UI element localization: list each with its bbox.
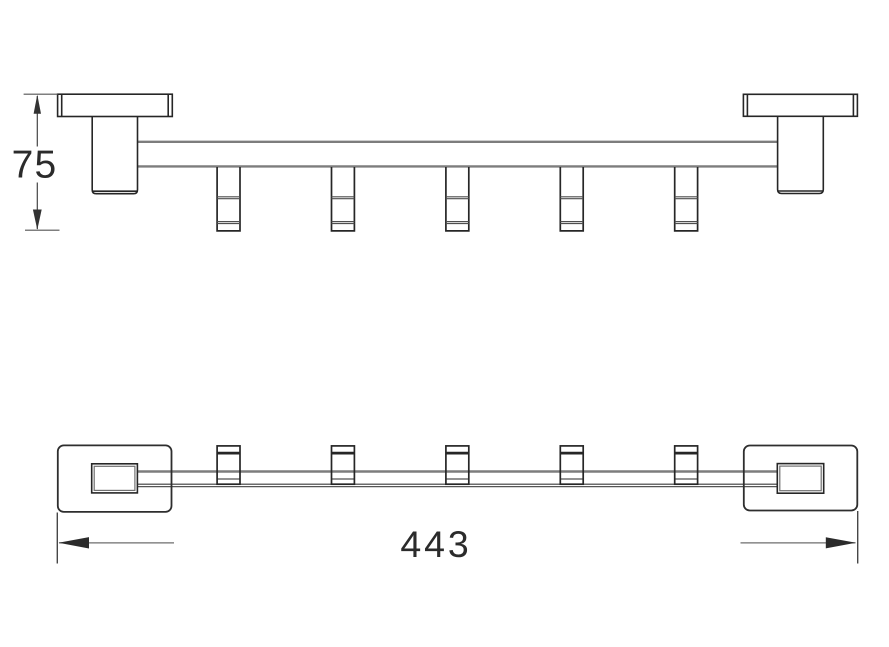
svg-text:443: 443 xyxy=(400,523,471,565)
svg-text:75: 75 xyxy=(12,144,58,187)
